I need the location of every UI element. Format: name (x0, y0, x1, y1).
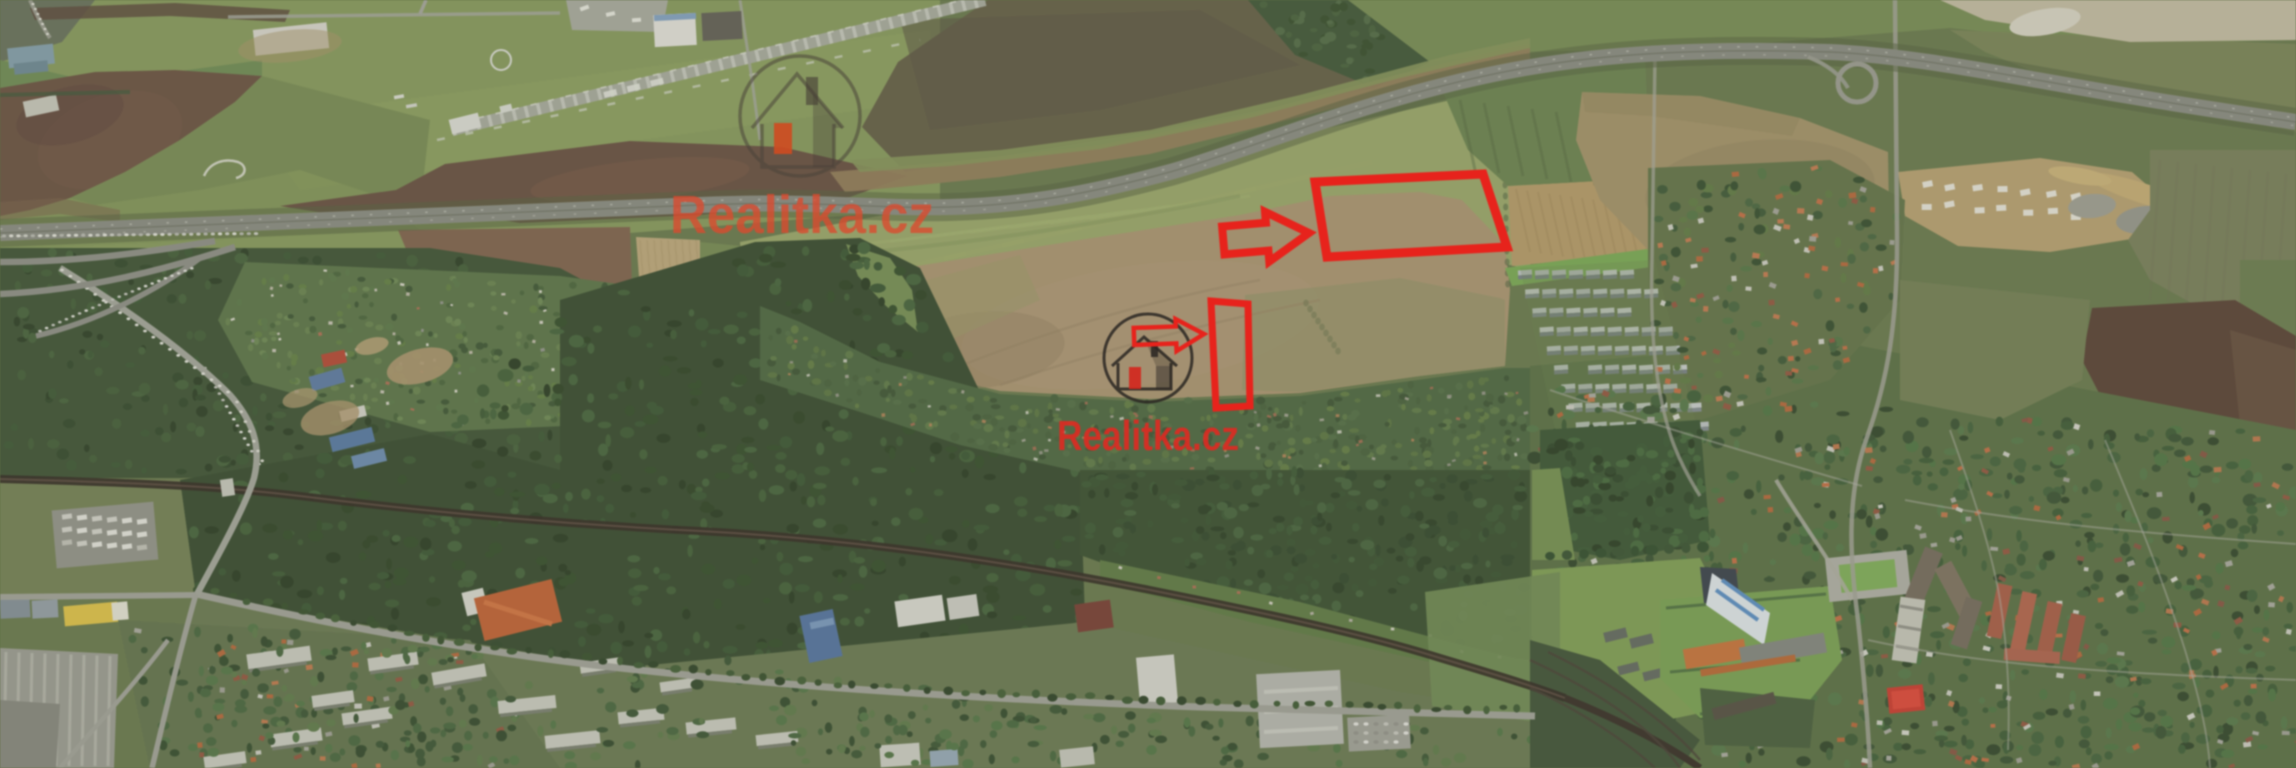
svg-text:Realitka.cz: Realitka.cz (1057, 412, 1239, 459)
svg-text:Realitka.cz: Realitka.cz (670, 185, 934, 245)
